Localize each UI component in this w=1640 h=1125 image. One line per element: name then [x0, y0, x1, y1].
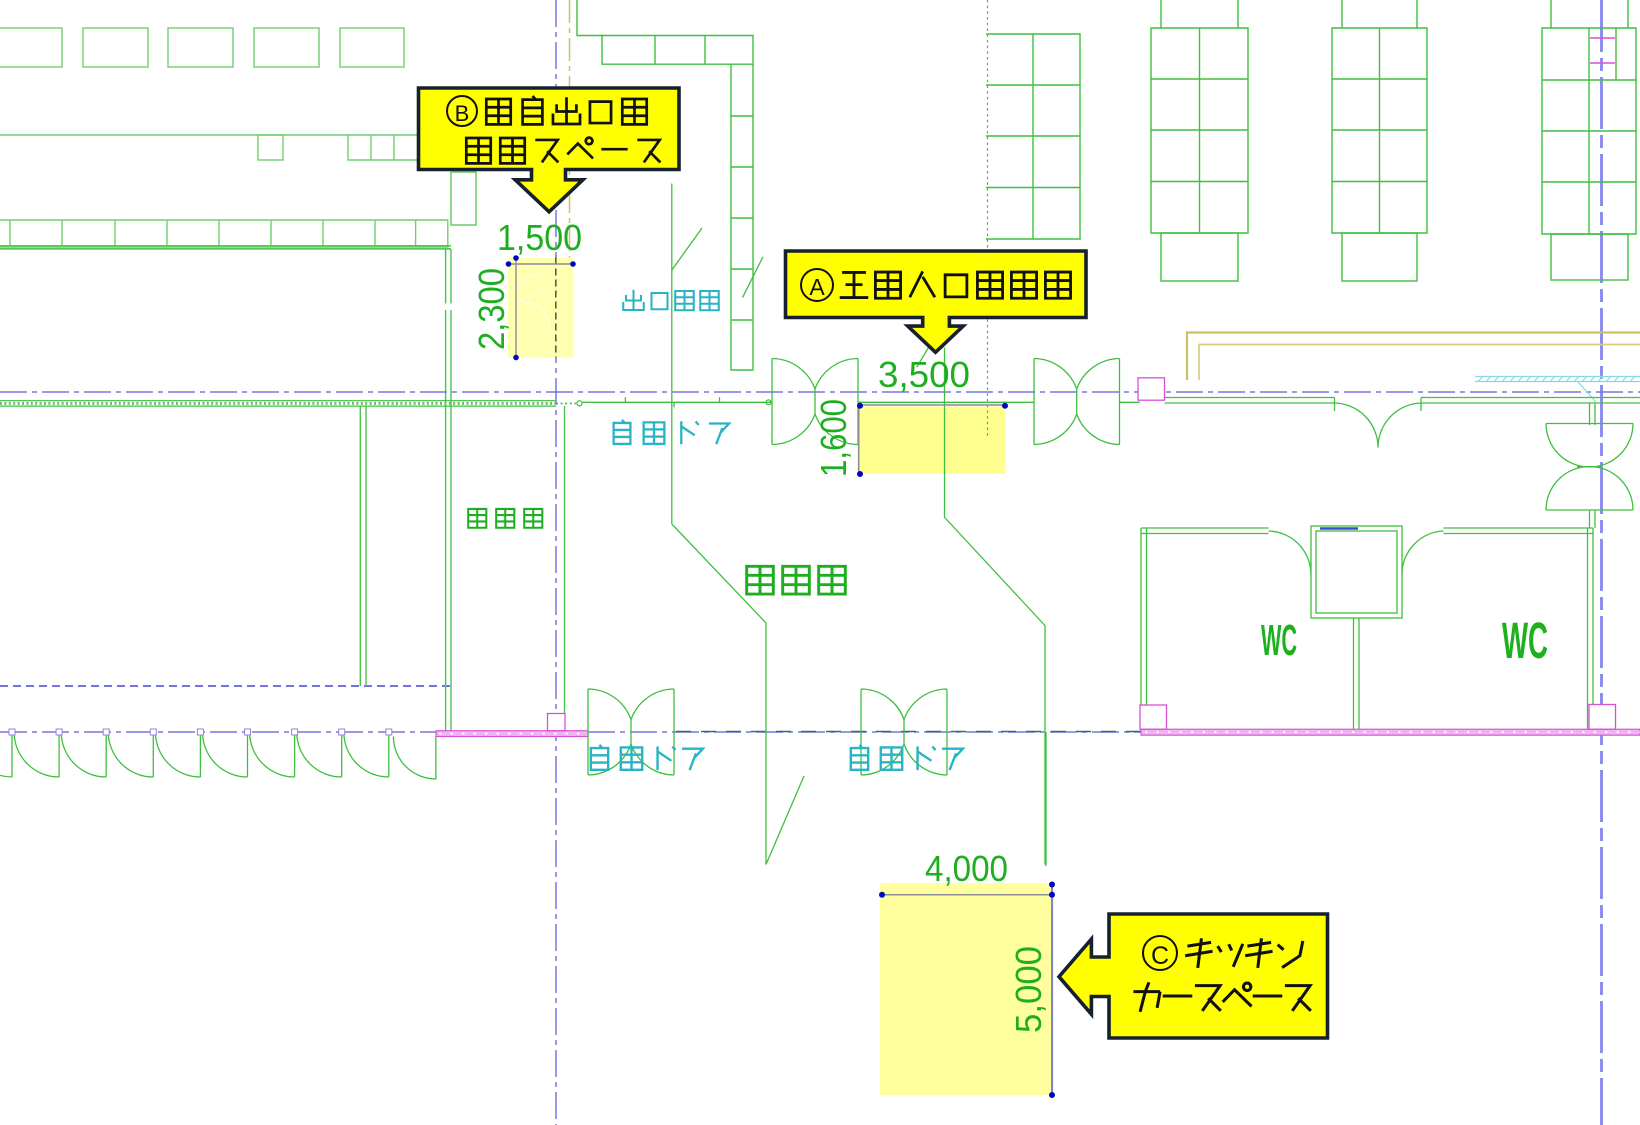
- svg-text:WC: WC: [1502, 612, 1548, 669]
- svg-text:A: A: [809, 274, 825, 300]
- svg-text:C: C: [1151, 942, 1169, 970]
- svg-text:5,000: 5,000: [1008, 946, 1049, 1033]
- svg-text:1,600: 1,600: [813, 399, 854, 477]
- svg-text:WC: WC: [1261, 616, 1297, 665]
- svg-text:1,500: 1,500: [497, 217, 582, 258]
- svg-text:2,300: 2,300: [471, 268, 512, 350]
- svg-text:B: B: [455, 101, 470, 126]
- svg-text:3,500: 3,500: [878, 354, 970, 395]
- svg-text:4,000: 4,000: [925, 848, 1008, 889]
